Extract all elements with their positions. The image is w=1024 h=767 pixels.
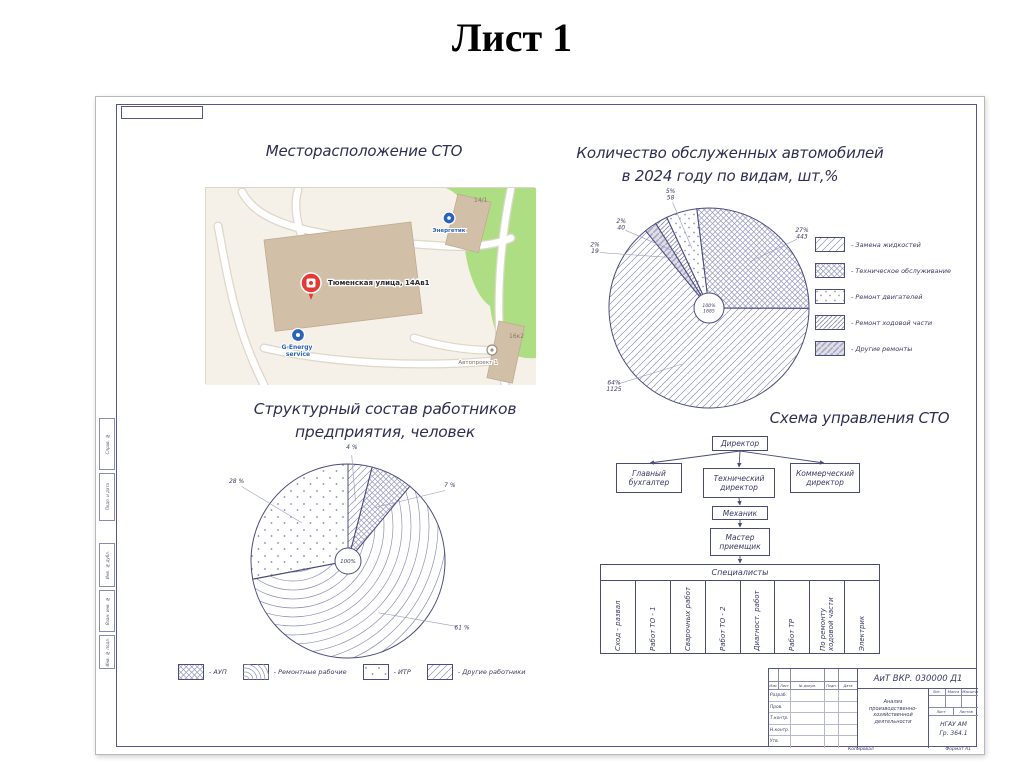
legend-swatch-dots [815, 289, 845, 304]
legend-swatch-cross [178, 664, 204, 680]
legend-label: - Ремонтные рабочие [274, 668, 347, 676]
legend-label: - Другие работники [458, 668, 526, 676]
pie1-title-line1: Количество обслуженных автомобилей [530, 142, 930, 165]
map-marker-autoproekt-label: Автопроект 1 [458, 360, 497, 366]
legend-swatch-gray [815, 341, 845, 356]
frame-side-cell: Подп. и дата [99, 473, 115, 521]
org-specialists-columns: Сход - развал Работ ТО - 1 Сварочных раб… [601, 581, 879, 653]
role-label: Пров. [769, 702, 791, 713]
map-address-label: Тюменская улица, 14Ав1 [328, 279, 430, 287]
specialist-label: Работ ТО - 1 [649, 583, 657, 651]
pie-slice-label: 27%443 [795, 227, 809, 241]
pie1-legend: - Замена жидкостей - Техническое обслужи… [815, 237, 951, 367]
specialist-column: Диагност. работ [741, 581, 776, 653]
map-marker-energetik-label: Энергетик [433, 228, 466, 234]
specialist-label: Электрик [858, 583, 866, 651]
pie-slice-label: 61 % [454, 625, 470, 632]
map-section-title: Месторасположение СТО [214, 142, 514, 160]
legend-label: - Ремонт ходовой части [851, 319, 932, 327]
frame-side-label: Инв. № подл. [105, 638, 110, 666]
title-block: АиТ ВКР. 030000 Д1 Анализ производственн… [768, 668, 977, 747]
legend-label: - АУП [209, 668, 227, 676]
location-map: 14/1 16к2 Энергетик Тюменская улица, 14А… [205, 187, 535, 384]
org-name: НГАУ АМ [929, 720, 978, 729]
legend-item: - Замена жидкостей [815, 237, 951, 252]
specialist-column: Электрик [845, 581, 879, 653]
change-rows [769, 669, 857, 682]
map-marker-genergy-line2: service [286, 351, 310, 358]
sheet-label: Лист [929, 708, 954, 715]
map-marker-genergy-label: G-Energy service [281, 344, 314, 358]
legend-swatch-diag [427, 664, 453, 680]
role-row: Т.контр. [769, 713, 857, 725]
org-specialists-header: Специалисты [601, 565, 879, 581]
header-row: Изм. Лист № докум. Подп. Дата [769, 682, 857, 690]
pie2-legend: - АУП - Ремонтные рабочие - ИТР - Другие… [178, 664, 525, 680]
legend-swatch-dots-sparse [363, 664, 389, 680]
title-block-left: Изм. Лист № докум. Подп. Дата Разраб. Пр… [769, 669, 857, 748]
role-row: Разраб. [769, 690, 857, 702]
scale-label: Масштаб [962, 689, 978, 695]
specialist-label: Сварочных работ [684, 583, 692, 651]
sheets-label: Листов [954, 708, 978, 715]
scale-value [962, 696, 978, 707]
role-row: Н.контр. [769, 725, 857, 737]
legend-item: - Ремонт двигателей [815, 289, 951, 304]
specialist-label: Работ ТО - 2 [719, 583, 727, 651]
legend-label: - Замена жидкостей [851, 241, 921, 249]
map-marker-genergy-line1: G-Energy [281, 344, 312, 351]
legend-label: - Техническое обслуживание [851, 267, 951, 275]
hdr-podp: Подп. [825, 682, 839, 689]
pie-slice-label: 64%1125 [606, 380, 621, 394]
title-block-footer: Копировал Формат А1 [768, 747, 977, 755]
title-block-right: Лит. Масса Масштаб Лист Листов НГАУ АМ Г… [929, 689, 978, 748]
legend-item: - Другие работники [427, 664, 526, 680]
pie-slice-label: 28 % [229, 478, 245, 485]
legend-swatch-dense [815, 315, 845, 330]
corner-stamp: АиТ ВКР. 030000 Д1 [121, 106, 203, 119]
legend-label: - ИТР [394, 668, 411, 676]
doc-title-line: производственно-хозяйственной [858, 706, 928, 719]
doc-title-line: деятельности [858, 719, 928, 726]
org-connectors [590, 430, 890, 570]
specialist-label: По ремонту ходовой части [819, 583, 835, 651]
legend-item: - ИТР [363, 664, 411, 680]
legend-item: - Ремонт ходовой части [815, 315, 951, 330]
specialist-label: Диагност. работ [753, 583, 761, 651]
org-specialists-table: Специалисты Сход - развал Работ ТО - 1 С… [600, 564, 880, 654]
org-cell: НГАУ АМ Гр. 364.1 [929, 716, 978, 747]
page-title: Лист 1 [0, 0, 1024, 61]
mass-label: Масса [946, 689, 963, 695]
specialist-column: Работ ТО - 2 [706, 581, 741, 653]
pie-center-label: 100% [340, 559, 356, 565]
specialist-column: Сход - развал [601, 581, 636, 653]
map-building-number-2: 16к2 [509, 333, 524, 340]
legend-item: - Техническое обслуживание [815, 263, 951, 278]
org-chart-title: Схема управления СТО [742, 409, 977, 427]
lit-header-row: Лит. Масса Масштаб [929, 689, 978, 696]
role-label: Разраб. [769, 690, 791, 701]
map-canvas: 14/1 16к2 Энергетик Тюменская улица, 14А… [206, 188, 536, 385]
frame-side-label: Инв. № дубл. [105, 551, 110, 579]
pie2-title-line1: Структурный состав работников [210, 398, 560, 421]
specialist-column: Работ ТР [775, 581, 810, 653]
hdr-docum: № докум. [791, 682, 825, 689]
org-group: Гр. 364.1 [929, 729, 978, 738]
hdr-data: Дата [839, 682, 857, 689]
role-label: Т.контр. [769, 713, 791, 724]
legend-swatch-arcs [243, 664, 269, 680]
frame-side-cell: Справ. № [99, 418, 115, 470]
mass-value [946, 696, 963, 707]
pie1-title: Количество обслуженных автомобилей в 202… [530, 142, 930, 188]
pie-chart-staff: 4 %7 %61 %28 %100% [210, 435, 510, 665]
frame-side-label: Справ. № [105, 434, 110, 454]
legend-swatch-diag [815, 237, 845, 252]
map-building-main [264, 222, 422, 331]
lit-values-row [929, 696, 978, 708]
legend-item: - Ремонтные рабочие [243, 664, 347, 680]
frame-side-label: Взам. инв. № [105, 597, 110, 625]
frame-side-cell: Инв. № дубл. [99, 543, 115, 587]
lit-label: Лит. [929, 689, 946, 695]
specialist-column: Работ ТО - 1 [636, 581, 671, 653]
pie-center-label: 100%1685 [702, 303, 715, 314]
legend-item: - АУП [178, 664, 227, 680]
role-row: Пров. [769, 702, 857, 714]
specialist-label: Сход - развал [614, 583, 622, 651]
specialist-column: По ремонту ходовой части [810, 581, 845, 653]
title-block-doc-number: АиТ ВКР. 030000 Д1 [857, 669, 978, 689]
specialist-label: Работ ТР [788, 583, 796, 651]
pie-slice-label: 7 % [444, 482, 456, 489]
frame-side-cell: Инв. № подл. [99, 635, 115, 669]
legend-item: - Другие ремонты [815, 341, 951, 356]
frame-side-label: Подп. и дата [105, 483, 110, 510]
pie-slice-label: 2%40 [616, 218, 626, 232]
hdr-list: Лист [779, 682, 791, 689]
corner-stamp-text: АиТ ВКР. 030000 Д1 [131, 115, 194, 119]
pie-slice-label: 5%58 [666, 188, 676, 202]
lit-value [929, 696, 946, 707]
title-block-doc-title: Анализ производственно-хозяйственной дея… [857, 689, 929, 748]
legend-label: - Ремонт двигателей [851, 293, 922, 301]
hdr-izm: Изм. [769, 682, 779, 689]
footer-copied: Копировал [848, 747, 874, 752]
sheet-row: Лист Листов [929, 708, 978, 716]
frame-side-cell: Взам. инв. № [99, 590, 115, 632]
map-building-number-1: 14/1 [474, 197, 488, 204]
role-label: Н.контр. [769, 725, 791, 736]
pie-slice-label: 2%19 [590, 242, 600, 256]
footer-format: Формат А1 [945, 747, 971, 752]
legend-swatch-cross [815, 263, 845, 278]
legend-label: - Другие ремонты [851, 345, 912, 353]
specialist-column: Сварочных работ [671, 581, 706, 653]
pie-slice-label: 4 % [346, 444, 358, 451]
